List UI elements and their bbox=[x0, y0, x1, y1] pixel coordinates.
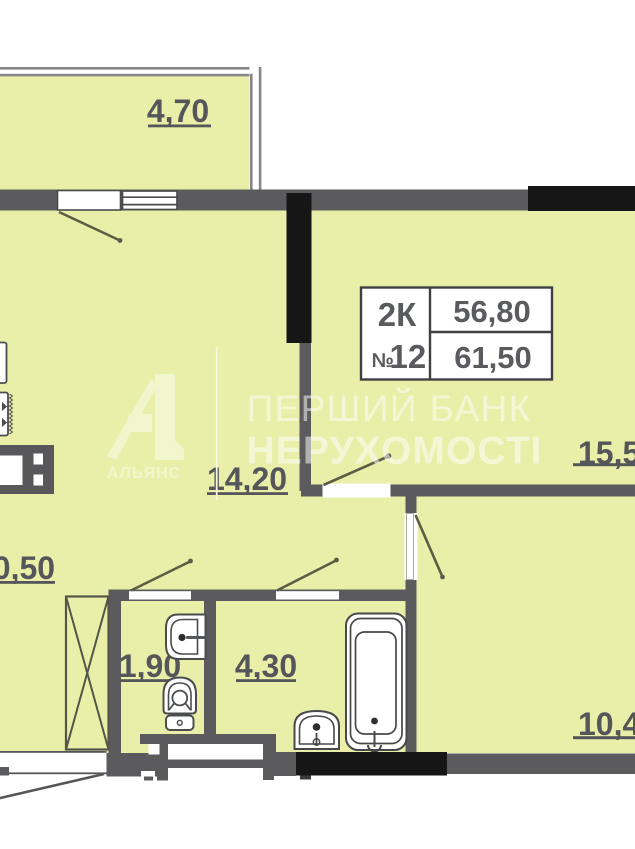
svg-text:4,70: 4,70 bbox=[147, 93, 209, 129]
svg-text:АЛЬЯНС: АЛЬЯНС bbox=[107, 465, 181, 482]
svg-text:НЕРУХОМОСТІ: НЕРУХОМОСТІ bbox=[247, 430, 543, 473]
svg-text:4,30: 4,30 bbox=[235, 648, 297, 684]
svg-text:2К: 2К bbox=[378, 296, 417, 333]
svg-text:10,50: 10,50 bbox=[0, 550, 55, 586]
svg-text:61,50: 61,50 bbox=[454, 340, 532, 375]
svg-text:56,80: 56,80 bbox=[453, 294, 531, 329]
svg-text:12: 12 bbox=[390, 338, 427, 375]
svg-text:ПЕРШИЙ БАНК: ПЕРШИЙ БАНК bbox=[247, 387, 532, 429]
